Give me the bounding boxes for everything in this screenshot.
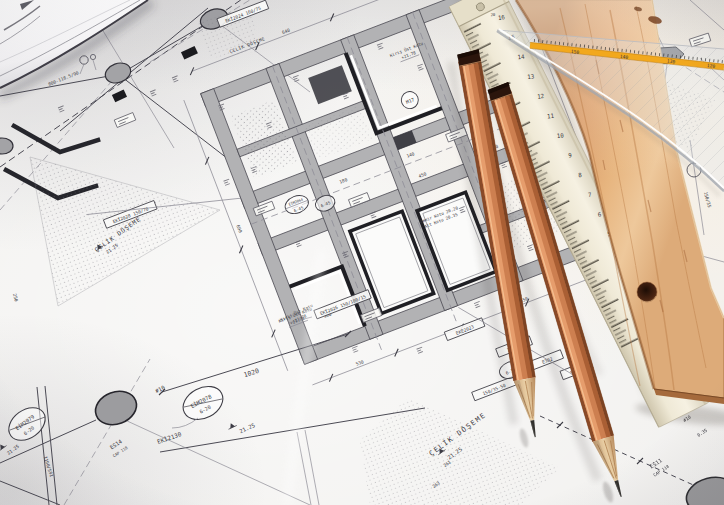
vignette (0, 0, 724, 505)
blueprint-photo: 800-118.5/90 250 ÇELİK DÖŞEME 21.25 360 … (0, 0, 724, 505)
photo-canvas: 800-118.5/90 250 ÇELİK DÖŞEME 21.25 360 … (0, 0, 724, 505)
